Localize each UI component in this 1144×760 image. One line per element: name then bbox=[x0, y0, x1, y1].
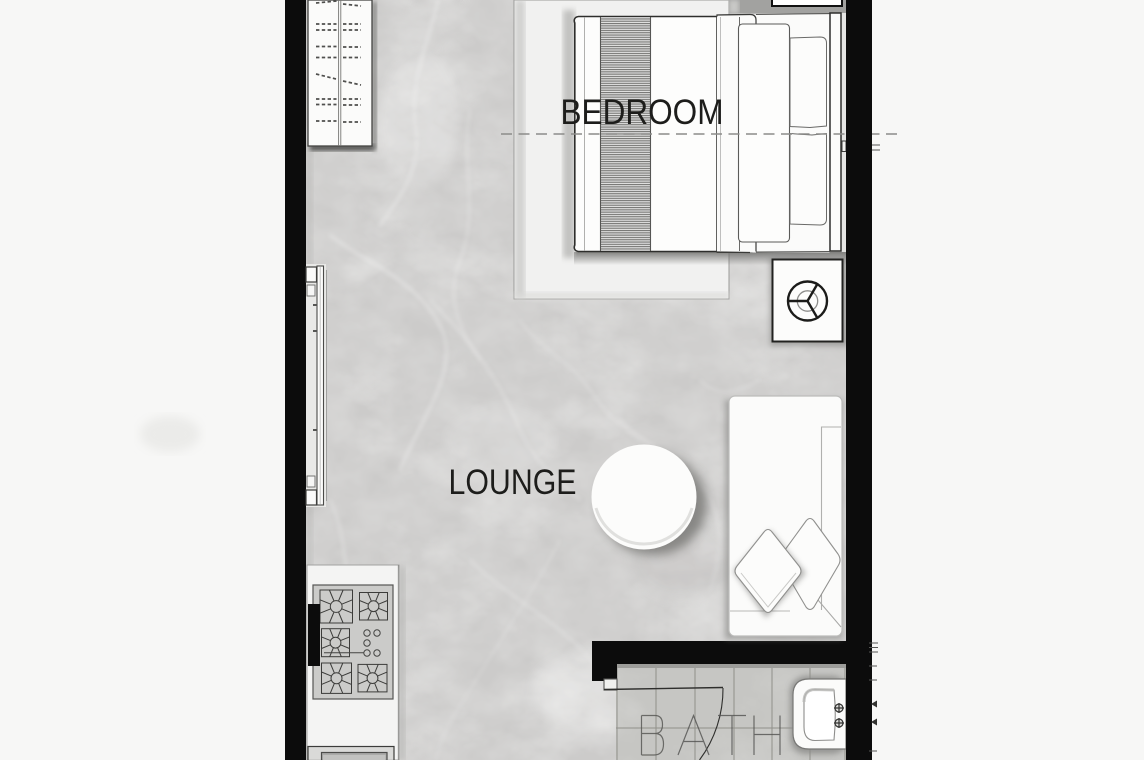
svg-text:BEDROOM: BEDROOM bbox=[561, 93, 724, 132]
svg-text:LOUNGE: LOUNGE bbox=[449, 463, 577, 502]
